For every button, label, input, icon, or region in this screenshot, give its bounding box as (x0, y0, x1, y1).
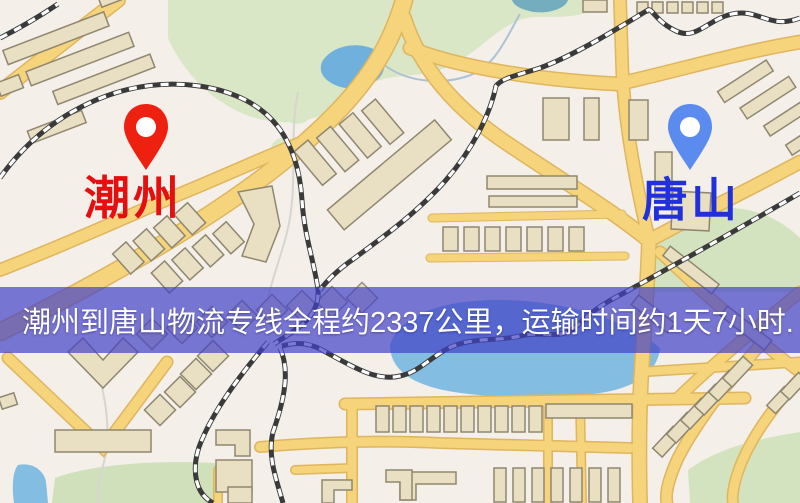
route-info-text: 潮州到唐山物流专线全程约2337公里，运输时间约1天7小时. (0, 299, 794, 341)
destination-pin-icon (666, 102, 714, 172)
destination-city-label: 唐山 (642, 178, 740, 224)
map-screenshot: 潮州到唐山物流专线全程约2337公里，运输时间约1天7小时. 潮州 唐山 (0, 0, 800, 503)
destination-marker (666, 102, 714, 172)
route-info-banner: 潮州到唐山物流专线全程约2337公里，运输时间约1天7小时. (0, 287, 800, 353)
origin-pin-icon (122, 102, 170, 172)
origin-city-label: 潮州 (84, 176, 182, 222)
map-image (0, 0, 800, 503)
origin-marker (122, 102, 170, 172)
